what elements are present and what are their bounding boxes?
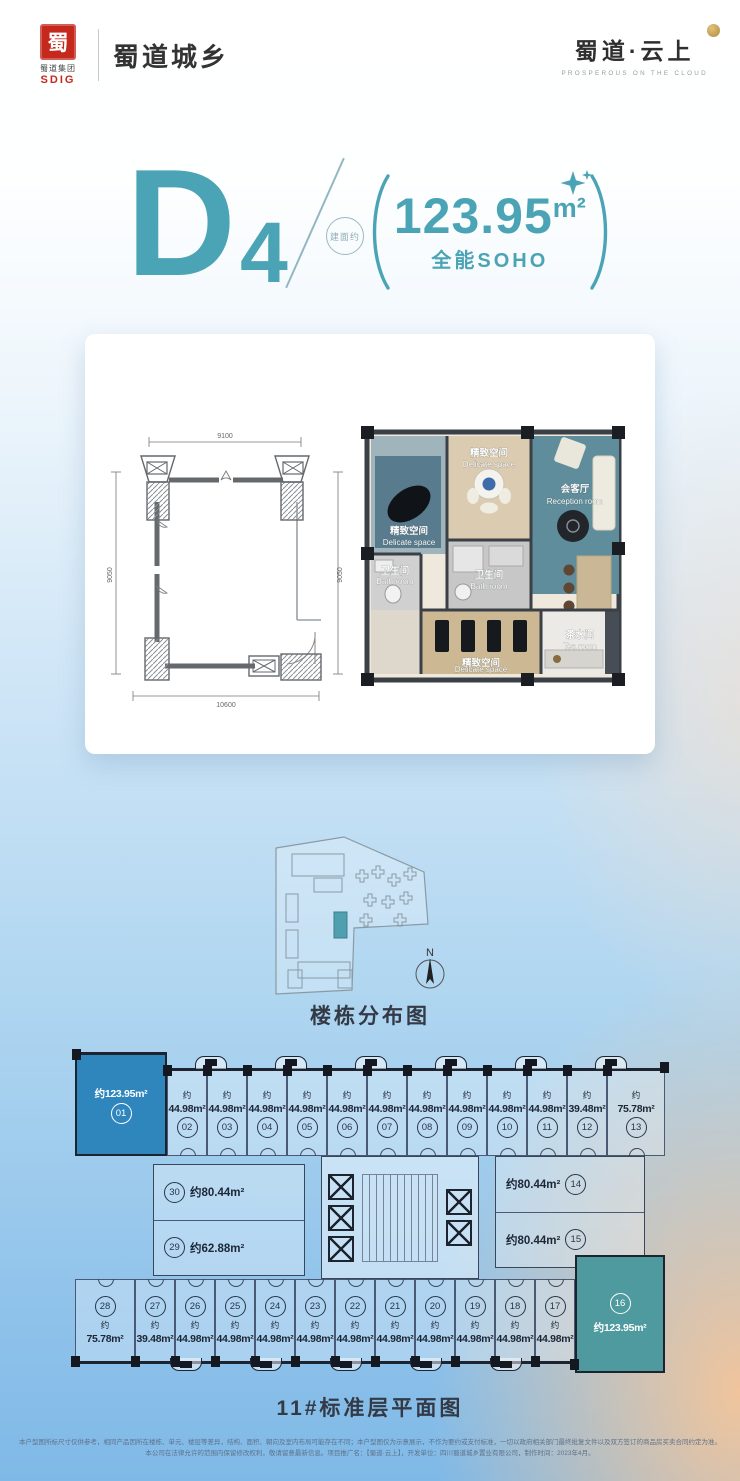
- footer-disclaimer: 本户型图所标尺寸仅供参考，相同产品因所在楼栋、单元、楼层等差异，结构、面积、朝向…: [18, 1437, 722, 1460]
- room-label-bath-mid-en: Bath room: [471, 582, 508, 591]
- unit-cell-06: 约 44.98m² 06: [327, 1068, 367, 1156]
- unit-cell-07: 约 44.98m² 07: [367, 1068, 407, 1156]
- unit-area: 44.98m²: [296, 1333, 333, 1345]
- unit-cell-26: 26 约 44.98m²: [175, 1279, 215, 1364]
- unit-plan-card: 9100 10600 9050 9050: [85, 334, 655, 754]
- unit-area: 约80.44m²: [190, 1184, 244, 1200]
- room-label-bath-left-cn: 卫生间: [381, 565, 410, 577]
- units-30-29-block: 30 约80.44m² 29 约62.88m²: [153, 1164, 305, 1276]
- stairs-icon: [362, 1174, 438, 1262]
- unit-area: 44.98m²: [176, 1333, 213, 1345]
- unit-cell-14: 约80.44m² 14: [496, 1157, 644, 1213]
- header: 蜀 蜀道集团 SDIG 蜀道城乡 蜀道·云上 PROSPEROUS ON THE…: [0, 24, 740, 86]
- elevator-bank: [328, 1174, 354, 1262]
- unit-cell-19: 19 约 44.98m²: [455, 1279, 495, 1364]
- unit-number: 12: [577, 1117, 598, 1138]
- unit-cell-30: 30 约80.44m²: [154, 1165, 304, 1221]
- elevator-bank: [446, 1189, 472, 1246]
- area-stamp: 建面约: [326, 217, 364, 255]
- unit-area: 44.98m²: [336, 1333, 373, 1345]
- area-number: 123.95: [394, 188, 553, 244]
- elevator-icon: [446, 1189, 472, 1215]
- unit-number: 16: [610, 1293, 631, 1314]
- unit-number: 21: [385, 1296, 406, 1317]
- unit-cell-12: 约 39.48m² 12: [567, 1068, 607, 1156]
- unit-number: 13: [626, 1117, 647, 1138]
- unit-cell-27: 27 约 39.48m²: [135, 1279, 175, 1364]
- elevator-icon: [328, 1174, 354, 1200]
- unit-number: 03: [217, 1117, 238, 1138]
- unit-number: 02: [177, 1117, 198, 1138]
- paren-open: [366, 173, 392, 291]
- unit-cell-29: 29 约62.88m²: [154, 1221, 304, 1276]
- site-plan-caption: 楼栋分布图: [0, 1000, 740, 1030]
- unit-area: 44.98m²: [536, 1333, 573, 1345]
- highlighted-building: [334, 912, 347, 938]
- dim-right: 9050: [337, 567, 344, 583]
- unit-number: 22: [345, 1296, 366, 1317]
- unit-number: 20: [425, 1296, 446, 1317]
- unit-cell-22: 22 约 44.98m²: [335, 1279, 375, 1364]
- unit-cell-08: 约 44.98m² 08: [407, 1068, 447, 1156]
- unit-cell-16: 16 约123.95m²: [575, 1255, 665, 1373]
- unit-cell-09: 约 44.98m² 09: [447, 1068, 487, 1156]
- unit-cell-24: 24 约 44.98m²: [255, 1279, 295, 1364]
- unit-number: 23: [305, 1296, 326, 1317]
- unit-area: 约80.44m²: [506, 1176, 560, 1192]
- unit-number: 30: [164, 1182, 185, 1203]
- unit-cell-13: 约 75.78m² 13: [607, 1068, 665, 1156]
- compass-icon: N: [416, 947, 444, 988]
- unit-number: 01: [111, 1103, 132, 1124]
- technical-floorplan: 9100 10600 9050 9050: [103, 424, 351, 716]
- unit-area: 44.98m²: [288, 1103, 325, 1115]
- dim-bottom: 10600: [216, 702, 236, 709]
- unit-area: 44.98m²: [168, 1103, 205, 1115]
- room-label-top-mid-cn: 精致空间: [470, 447, 508, 459]
- unit-cell-18: 18 约 44.98m²: [495, 1279, 535, 1364]
- group-abbr: SDIG: [41, 74, 76, 86]
- unit-number: 27: [145, 1296, 166, 1317]
- unit-area: 75.78m²: [86, 1333, 123, 1345]
- unit-area: 44.98m²: [416, 1333, 453, 1345]
- unit-area: 44.98m²: [208, 1103, 245, 1115]
- unit-number: 28: [95, 1296, 116, 1317]
- area-value: 123.95m²: [394, 191, 586, 241]
- unit-area: 44.98m²: [328, 1103, 365, 1115]
- unit-area: 约80.44m²: [506, 1232, 560, 1248]
- room-label-bottom-mid-en: Delicate space: [455, 665, 508, 674]
- unit-number: 19: [465, 1296, 486, 1317]
- unit-number: 08: [417, 1117, 438, 1138]
- unit-number: 18: [505, 1296, 526, 1317]
- logo-divider: [98, 29, 99, 81]
- unit-number-large: 4: [240, 215, 288, 292]
- unit-number: 06: [337, 1117, 358, 1138]
- unit-area: 44.98m²: [216, 1333, 253, 1345]
- room-label-top-left-cn: 精致空间: [390, 525, 428, 537]
- room-label-reception-en: Reception room: [547, 497, 604, 506]
- disclaimer-line-2: 本公司在法律允许的范围内保留修改权利，敬请留意最新信息。项目推广名：【蜀道·云上…: [18, 1448, 722, 1459]
- area-subtitle: 全能SOHO: [431, 244, 548, 273]
- brand-left-wordmark: 蜀道城乡: [113, 37, 229, 74]
- units-14-15-block: 约80.44m² 14 约80.44m² 15: [495, 1156, 645, 1268]
- unit-number: 15: [565, 1229, 586, 1250]
- unit-number: 24: [265, 1296, 286, 1317]
- elevator-icon: [446, 1220, 472, 1246]
- room-label-top-mid-en: Delicate space: [463, 460, 516, 469]
- unit-cell-17: 17 约 44.98m²: [535, 1279, 575, 1364]
- header-right-logo: 蜀道·云上 PROSPEROUS ON THE CLOUD: [561, 32, 708, 77]
- unit-cell-02: 约 44.98m² 02: [167, 1068, 207, 1156]
- elevator-icon: [328, 1236, 354, 1262]
- elevator-core: [321, 1156, 479, 1279]
- unit-number: 11: [537, 1117, 558, 1138]
- dim-top: 9100: [217, 433, 233, 440]
- unit-cell-04: 约 44.98m² 04: [247, 1068, 287, 1156]
- unit-area: 44.98m²: [528, 1103, 565, 1115]
- room-label-bath-left-en: Bath room: [377, 577, 414, 586]
- brand-right-wordmark: 蜀道·云上: [561, 32, 708, 66]
- bottom-unit-row: 28 约 75.78m² 27 约 39.48m² 26 约 44.98m² 2…: [75, 1279, 575, 1364]
- room-label-tea-en: Tea room: [563, 642, 597, 651]
- unit-number: 05: [297, 1117, 318, 1138]
- unit-cell-03: 约 44.98m² 03: [207, 1068, 247, 1156]
- unit-cell-01: 约123.95m² 01: [75, 1052, 167, 1156]
- unit-area: 44.98m²: [408, 1103, 445, 1115]
- unit-area: 约123.95m²: [95, 1086, 148, 1101]
- top-unit-row: 约123.95m² 01 约 44.98m² 02 约 44.98m² 03 约…: [75, 1068, 665, 1156]
- unit-cell-11: 约 44.98m² 11: [527, 1068, 567, 1156]
- unit-number: 26: [185, 1296, 206, 1317]
- unit-title-block: D 4 建面约 123.95m² 全能SOHO: [0, 152, 740, 294]
- unit-number: 04: [257, 1117, 278, 1138]
- unit-number: 17: [545, 1296, 566, 1317]
- site-plan: N: [252, 832, 488, 1004]
- unit-cell-20: 20 约 44.98m²: [415, 1279, 455, 1364]
- unit-cell-10: 约 44.98m² 10: [487, 1068, 527, 1156]
- standard-floor-plate: 约123.95m² 01 约 44.98m² 02 约 44.98m² 03 约…: [75, 1052, 665, 1376]
- unit-area: 44.98m²: [376, 1333, 413, 1345]
- unit-area: 44.98m²: [248, 1103, 285, 1115]
- unit-number: 07: [377, 1117, 398, 1138]
- unit-area: 39.48m²: [136, 1333, 173, 1345]
- unit-area: 44.98m²: [488, 1103, 525, 1115]
- unit-cell-21: 21 约 44.98m²: [375, 1279, 415, 1364]
- unit-number: 10: [497, 1117, 518, 1138]
- group-name: 蜀道集团: [40, 63, 76, 74]
- unit-area: 约62.88m²: [190, 1240, 244, 1256]
- unit-area: 39.48m²: [568, 1103, 605, 1115]
- elevator-icon: [328, 1205, 354, 1231]
- group-seal-icon: 蜀: [40, 24, 76, 60]
- poster: 蜀 蜀道集团 SDIG 蜀道城乡 蜀道·云上 PROSPEROUS ON THE…: [0, 0, 740, 1481]
- unit-area: 44.98m²: [456, 1333, 493, 1345]
- unit-area: 44.98m²: [368, 1103, 405, 1115]
- group-logo: 蜀 蜀道集团 SDIG: [32, 24, 84, 86]
- unit-number: 29: [164, 1237, 185, 1258]
- gold-moon-icon: [707, 24, 720, 37]
- room-label-reception-cn: 会客厅: [561, 483, 590, 495]
- area-text-group: 123.95m² 全能SOHO: [394, 191, 586, 273]
- room-label-bath-mid-cn: 卫生间: [475, 569, 504, 581]
- floor-plate-caption: 11#标准层平面图: [0, 1392, 740, 1422]
- unit-letter: D: [126, 164, 236, 283]
- dim-left: 9050: [107, 567, 114, 583]
- rendered-floorplan: 精致空间 Delicate space 精致空间 Delicate space …: [361, 422, 633, 694]
- header-left-logo: 蜀 蜀道集团 SDIG 蜀道城乡: [32, 24, 229, 86]
- unit-number: 09: [457, 1117, 478, 1138]
- unit-number: 25: [225, 1296, 246, 1317]
- compass-label: N: [426, 947, 434, 959]
- unit-area: 44.98m²: [256, 1333, 293, 1345]
- unit-area: 约123.95m²: [594, 1320, 647, 1335]
- unit-cell-23: 23 约 44.98m²: [295, 1279, 335, 1364]
- sparkle-icon: [560, 169, 594, 199]
- unit-area: 44.98m²: [448, 1103, 485, 1115]
- unit-area: 44.98m²: [496, 1333, 533, 1345]
- disclaimer-line-1: 本户型图所标尺寸仅供参考，相同产品因所在楼栋、单元、楼层等差异，结构、面积、朝向…: [18, 1437, 722, 1448]
- unit-area: 75.78m²: [617, 1103, 654, 1115]
- unit-cell-25: 25 约 44.98m²: [215, 1279, 255, 1364]
- unit-cell-05: 约 44.98m² 05: [287, 1068, 327, 1156]
- room-label-top-left-en: Delicate space: [383, 538, 436, 547]
- brand-right-tagline: PROSPEROUS ON THE CLOUD: [561, 70, 708, 77]
- unit-number: 14: [565, 1174, 586, 1195]
- room-label-tea-cn: 茶水间: [565, 629, 595, 641]
- unit-cell-28: 28 约 75.78m²: [75, 1279, 135, 1364]
